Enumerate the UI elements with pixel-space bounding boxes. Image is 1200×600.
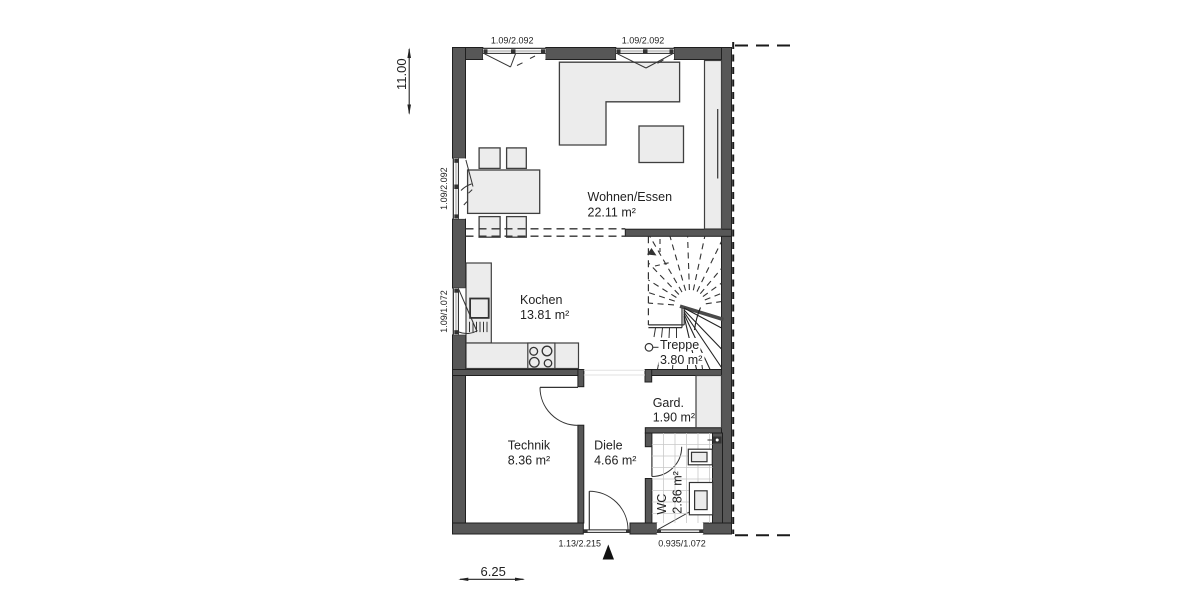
svg-text:Technik: Technik — [508, 439, 551, 453]
svg-text:1.09/2.092: 1.09/2.092 — [439, 167, 449, 210]
svg-text:0.935/1.072: 0.935/1.072 — [658, 539, 706, 549]
svg-text:1.13/2.215: 1.13/2.215 — [559, 539, 602, 549]
svg-text:1.09/2.092: 1.09/2.092 — [491, 36, 534, 46]
svg-text:1.09/1.072: 1.09/1.072 — [439, 290, 449, 333]
svg-text:11.00: 11.00 — [394, 58, 409, 90]
svg-text:Diele: Diele — [594, 438, 623, 452]
svg-text:13.81 m²: 13.81 m² — [520, 308, 569, 322]
svg-text:Treppe: Treppe — [660, 338, 699, 352]
svg-text:4.66 m²: 4.66 m² — [594, 454, 636, 468]
svg-text:1.09/2.092: 1.09/2.092 — [622, 36, 665, 46]
svg-text:22.11 m²: 22.11 m² — [588, 206, 636, 220]
svg-text:Kochen: Kochen — [520, 293, 562, 307]
svg-text:WC: WC — [655, 494, 669, 515]
svg-text:3.80 m²: 3.80 m² — [660, 353, 702, 367]
svg-text:Wohnen/Essen: Wohnen/Essen — [588, 190, 673, 204]
svg-text:2.86 m²: 2.86 m² — [671, 471, 685, 513]
svg-text:8.36 m²: 8.36 m² — [508, 454, 550, 468]
svg-text:6.25: 6.25 — [481, 564, 506, 579]
svg-text:1.90 m²: 1.90 m² — [653, 411, 695, 425]
svg-text:Gard.: Gard. — [653, 396, 684, 410]
